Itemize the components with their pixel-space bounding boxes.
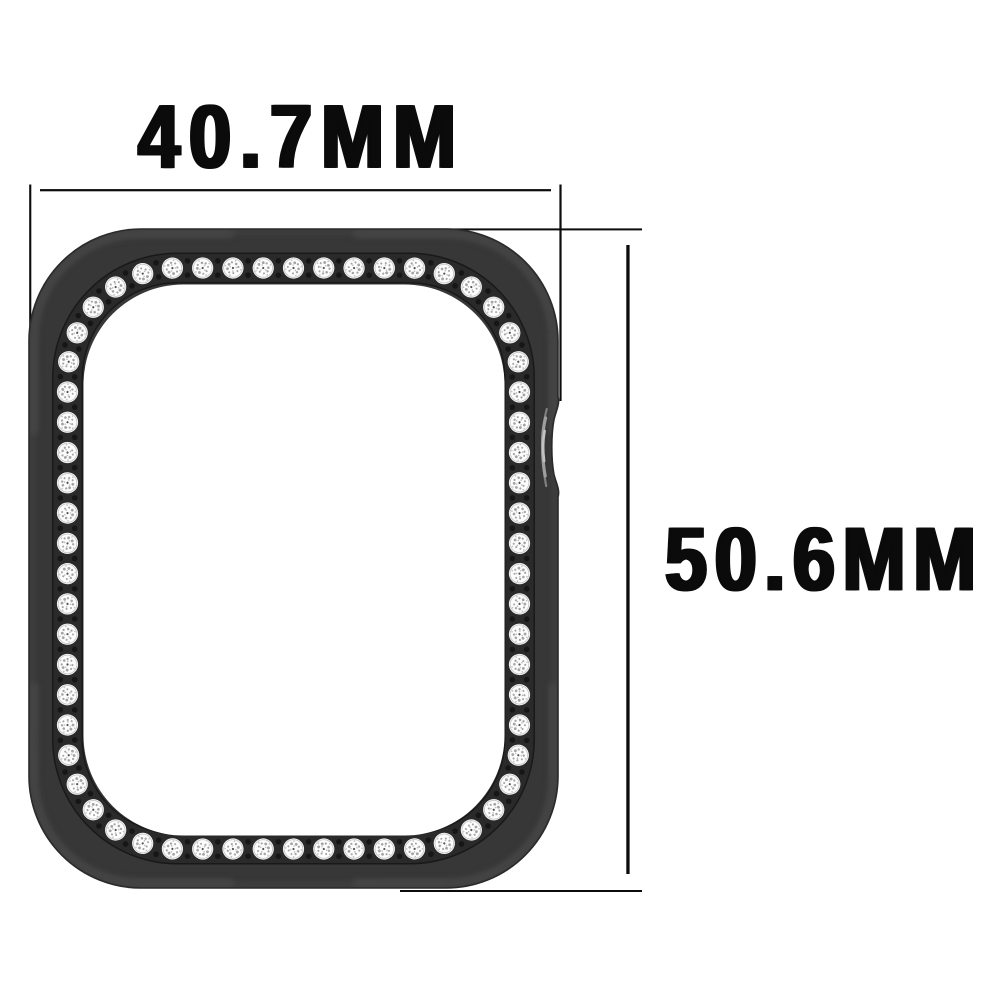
svg-text:50.6MM: 50.6MM (667, 509, 986, 610)
svg-text:40.7MM: 40.7MM (140, 86, 467, 187)
